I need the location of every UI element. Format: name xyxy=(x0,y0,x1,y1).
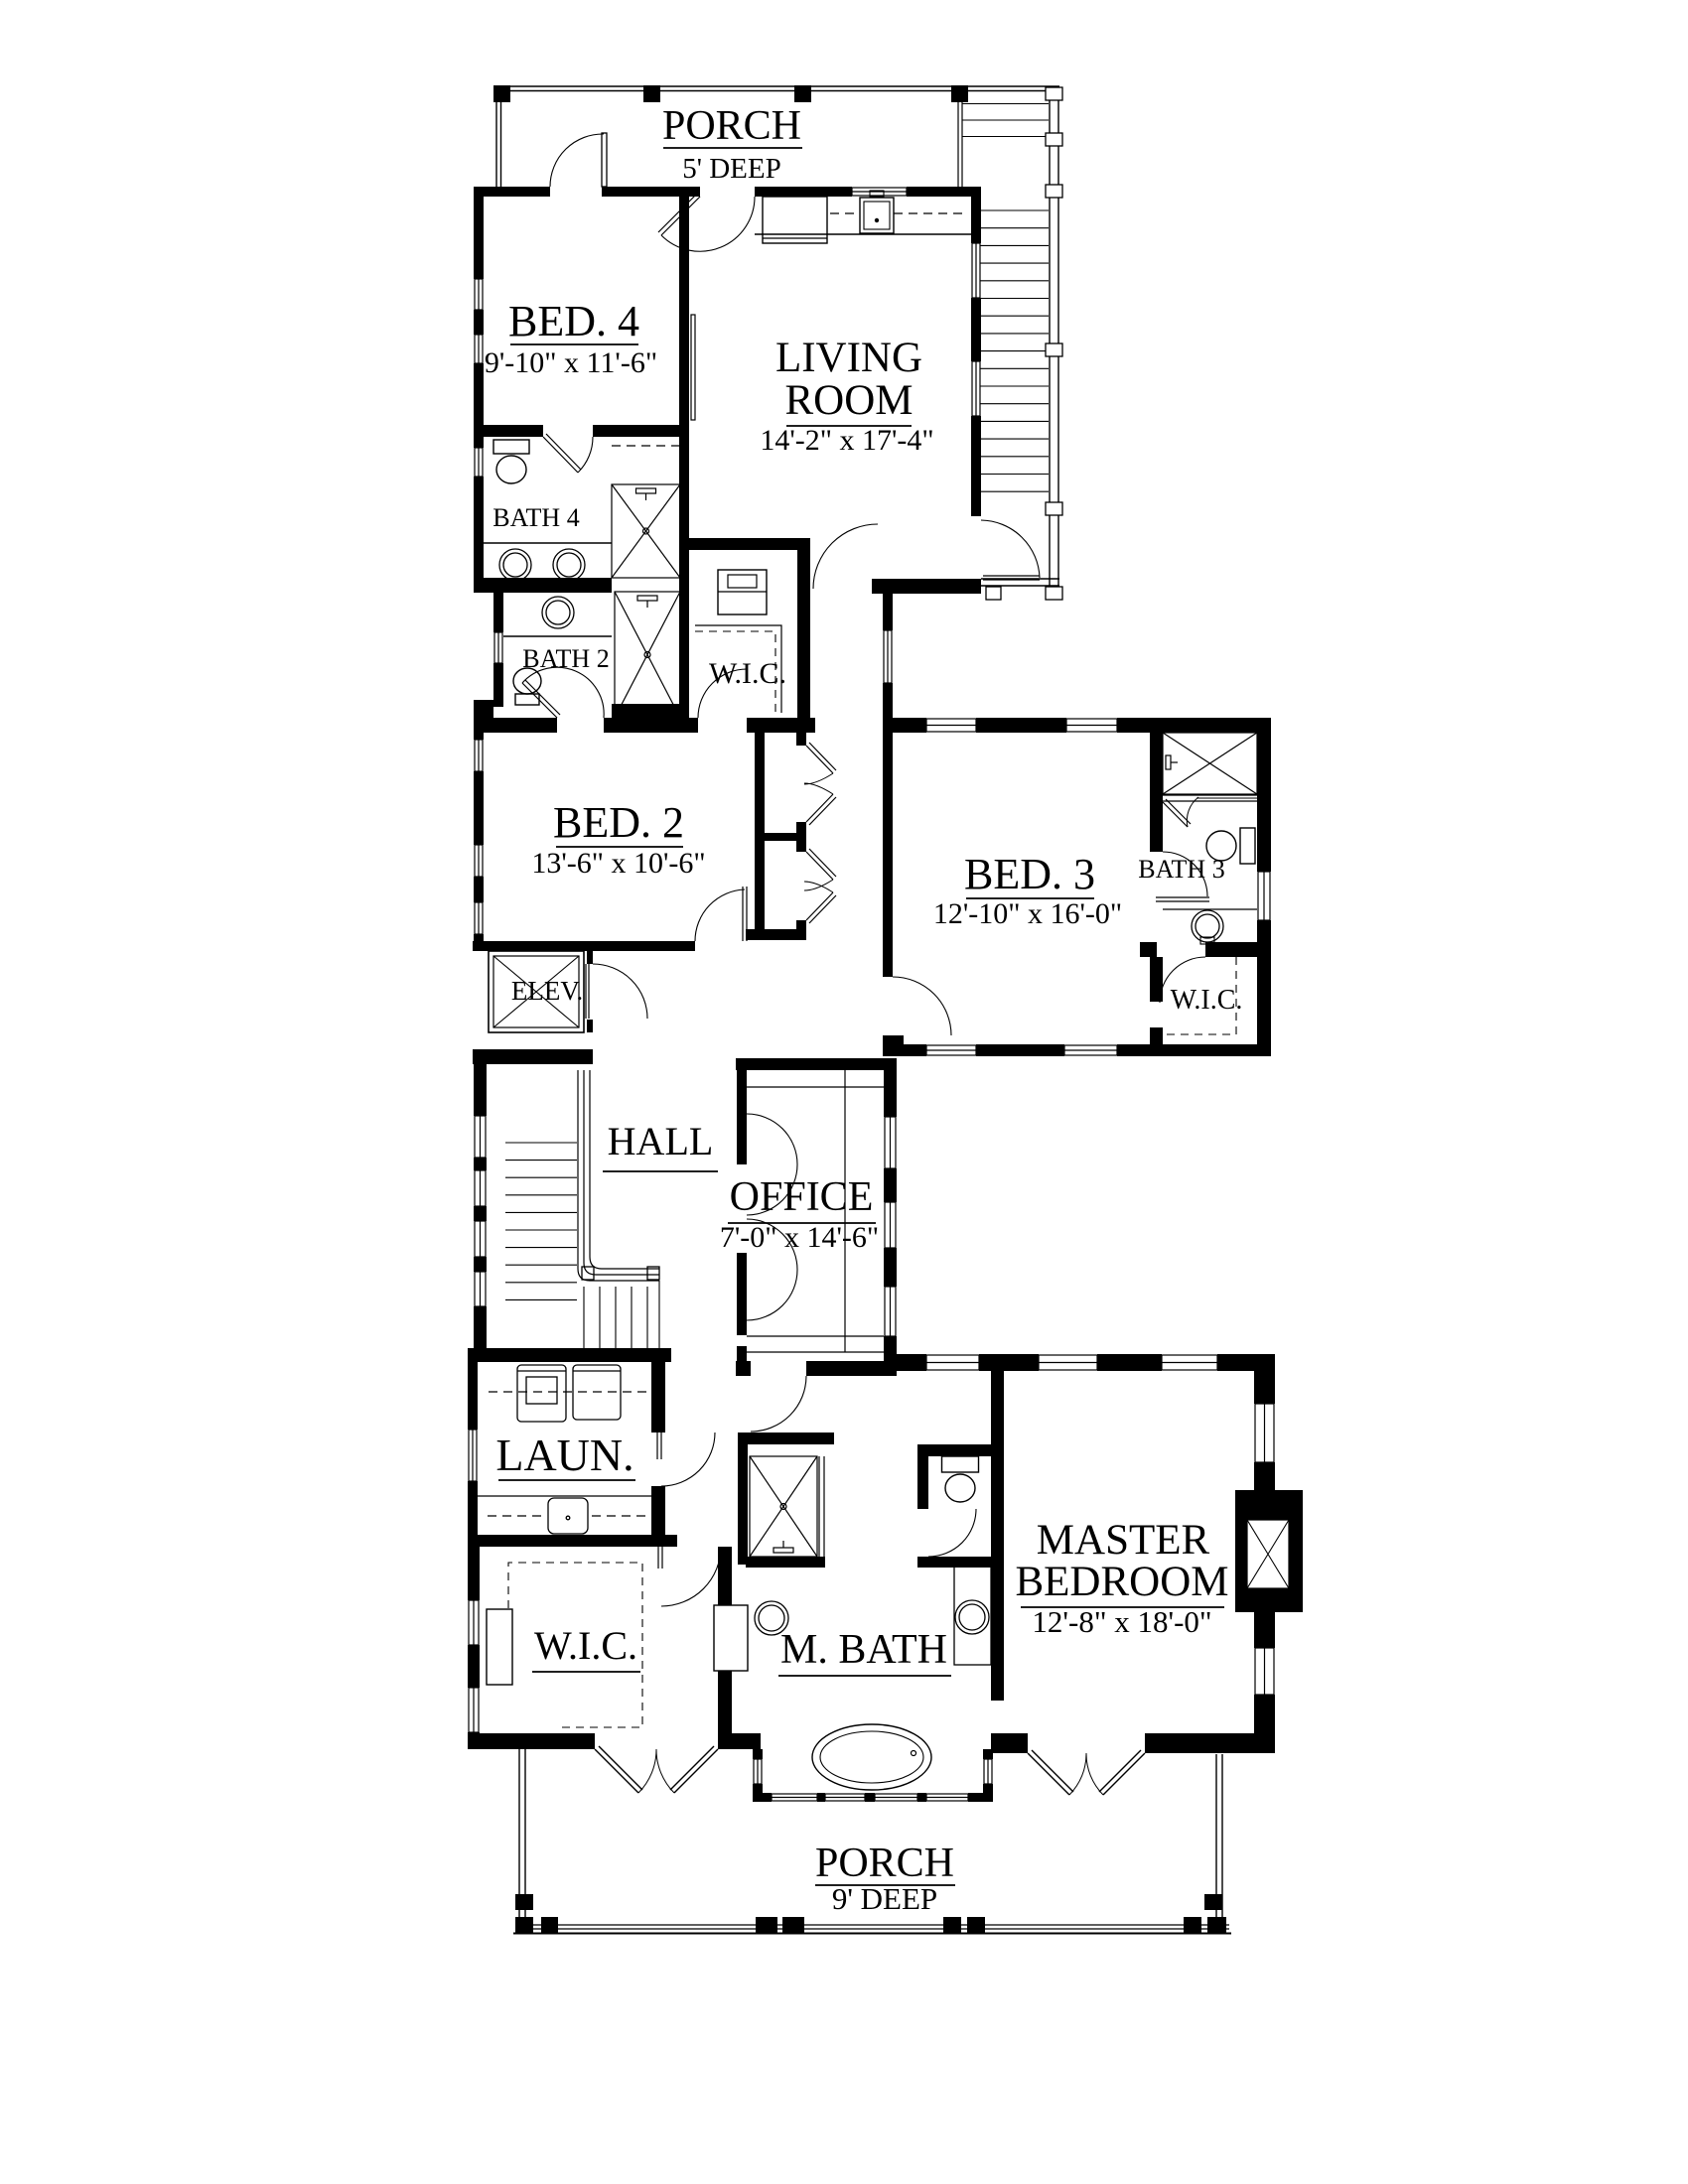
svg-text:5' DEEP: 5' DEEP xyxy=(682,153,780,185)
svg-text:W.I.C.: W.I.C. xyxy=(1171,985,1243,1016)
svg-text:13'-6" x 10'-6": 13'-6" x 10'-6" xyxy=(531,847,705,880)
svg-text:BATH 3: BATH 3 xyxy=(1138,855,1224,884)
svg-text:7'-0" x 14'-6": 7'-0" x 14'-6" xyxy=(720,1221,879,1254)
svg-text:PORCH: PORCH xyxy=(662,103,801,149)
svg-text:HALL: HALL xyxy=(608,1119,714,1163)
svg-text:MASTER: MASTER xyxy=(1037,1517,1210,1564)
svg-text:12'-8" x 18'-0": 12'-8" x 18'-0" xyxy=(1032,1604,1211,1639)
svg-text:PORCH: PORCH xyxy=(815,1841,954,1886)
svg-text:LIVING: LIVING xyxy=(775,335,922,381)
svg-text:14'-2" x 17'-4": 14'-2" x 17'-4" xyxy=(760,424,933,457)
svg-text:BATH 4: BATH 4 xyxy=(492,503,579,532)
svg-text:BED. 4: BED. 4 xyxy=(508,297,639,345)
svg-text:W.I.C.: W.I.C. xyxy=(534,1623,637,1668)
svg-text:BATH 2: BATH 2 xyxy=(522,644,609,673)
svg-text:OFFICE: OFFICE xyxy=(730,1174,874,1220)
svg-text:9'-10" x 11'-6": 9'-10" x 11'-6" xyxy=(485,346,657,379)
svg-text:9' DEEP: 9' DEEP xyxy=(832,1881,937,1916)
svg-text:M. BATH: M. BATH xyxy=(780,1627,947,1673)
svg-text:BED. 3: BED. 3 xyxy=(964,850,1095,898)
svg-text:12'-10" x 16'-0": 12'-10" x 16'-0" xyxy=(933,897,1122,930)
svg-text:BED. 2: BED. 2 xyxy=(553,798,684,847)
svg-text:LAUN.: LAUN. xyxy=(495,1430,633,1480)
svg-text:W.I.C.: W.I.C. xyxy=(709,657,786,690)
svg-text:BEDROOM: BEDROOM xyxy=(1015,1559,1228,1605)
svg-text:ROOM: ROOM xyxy=(784,377,913,424)
svg-text:ELEV.: ELEV. xyxy=(511,976,583,1006)
